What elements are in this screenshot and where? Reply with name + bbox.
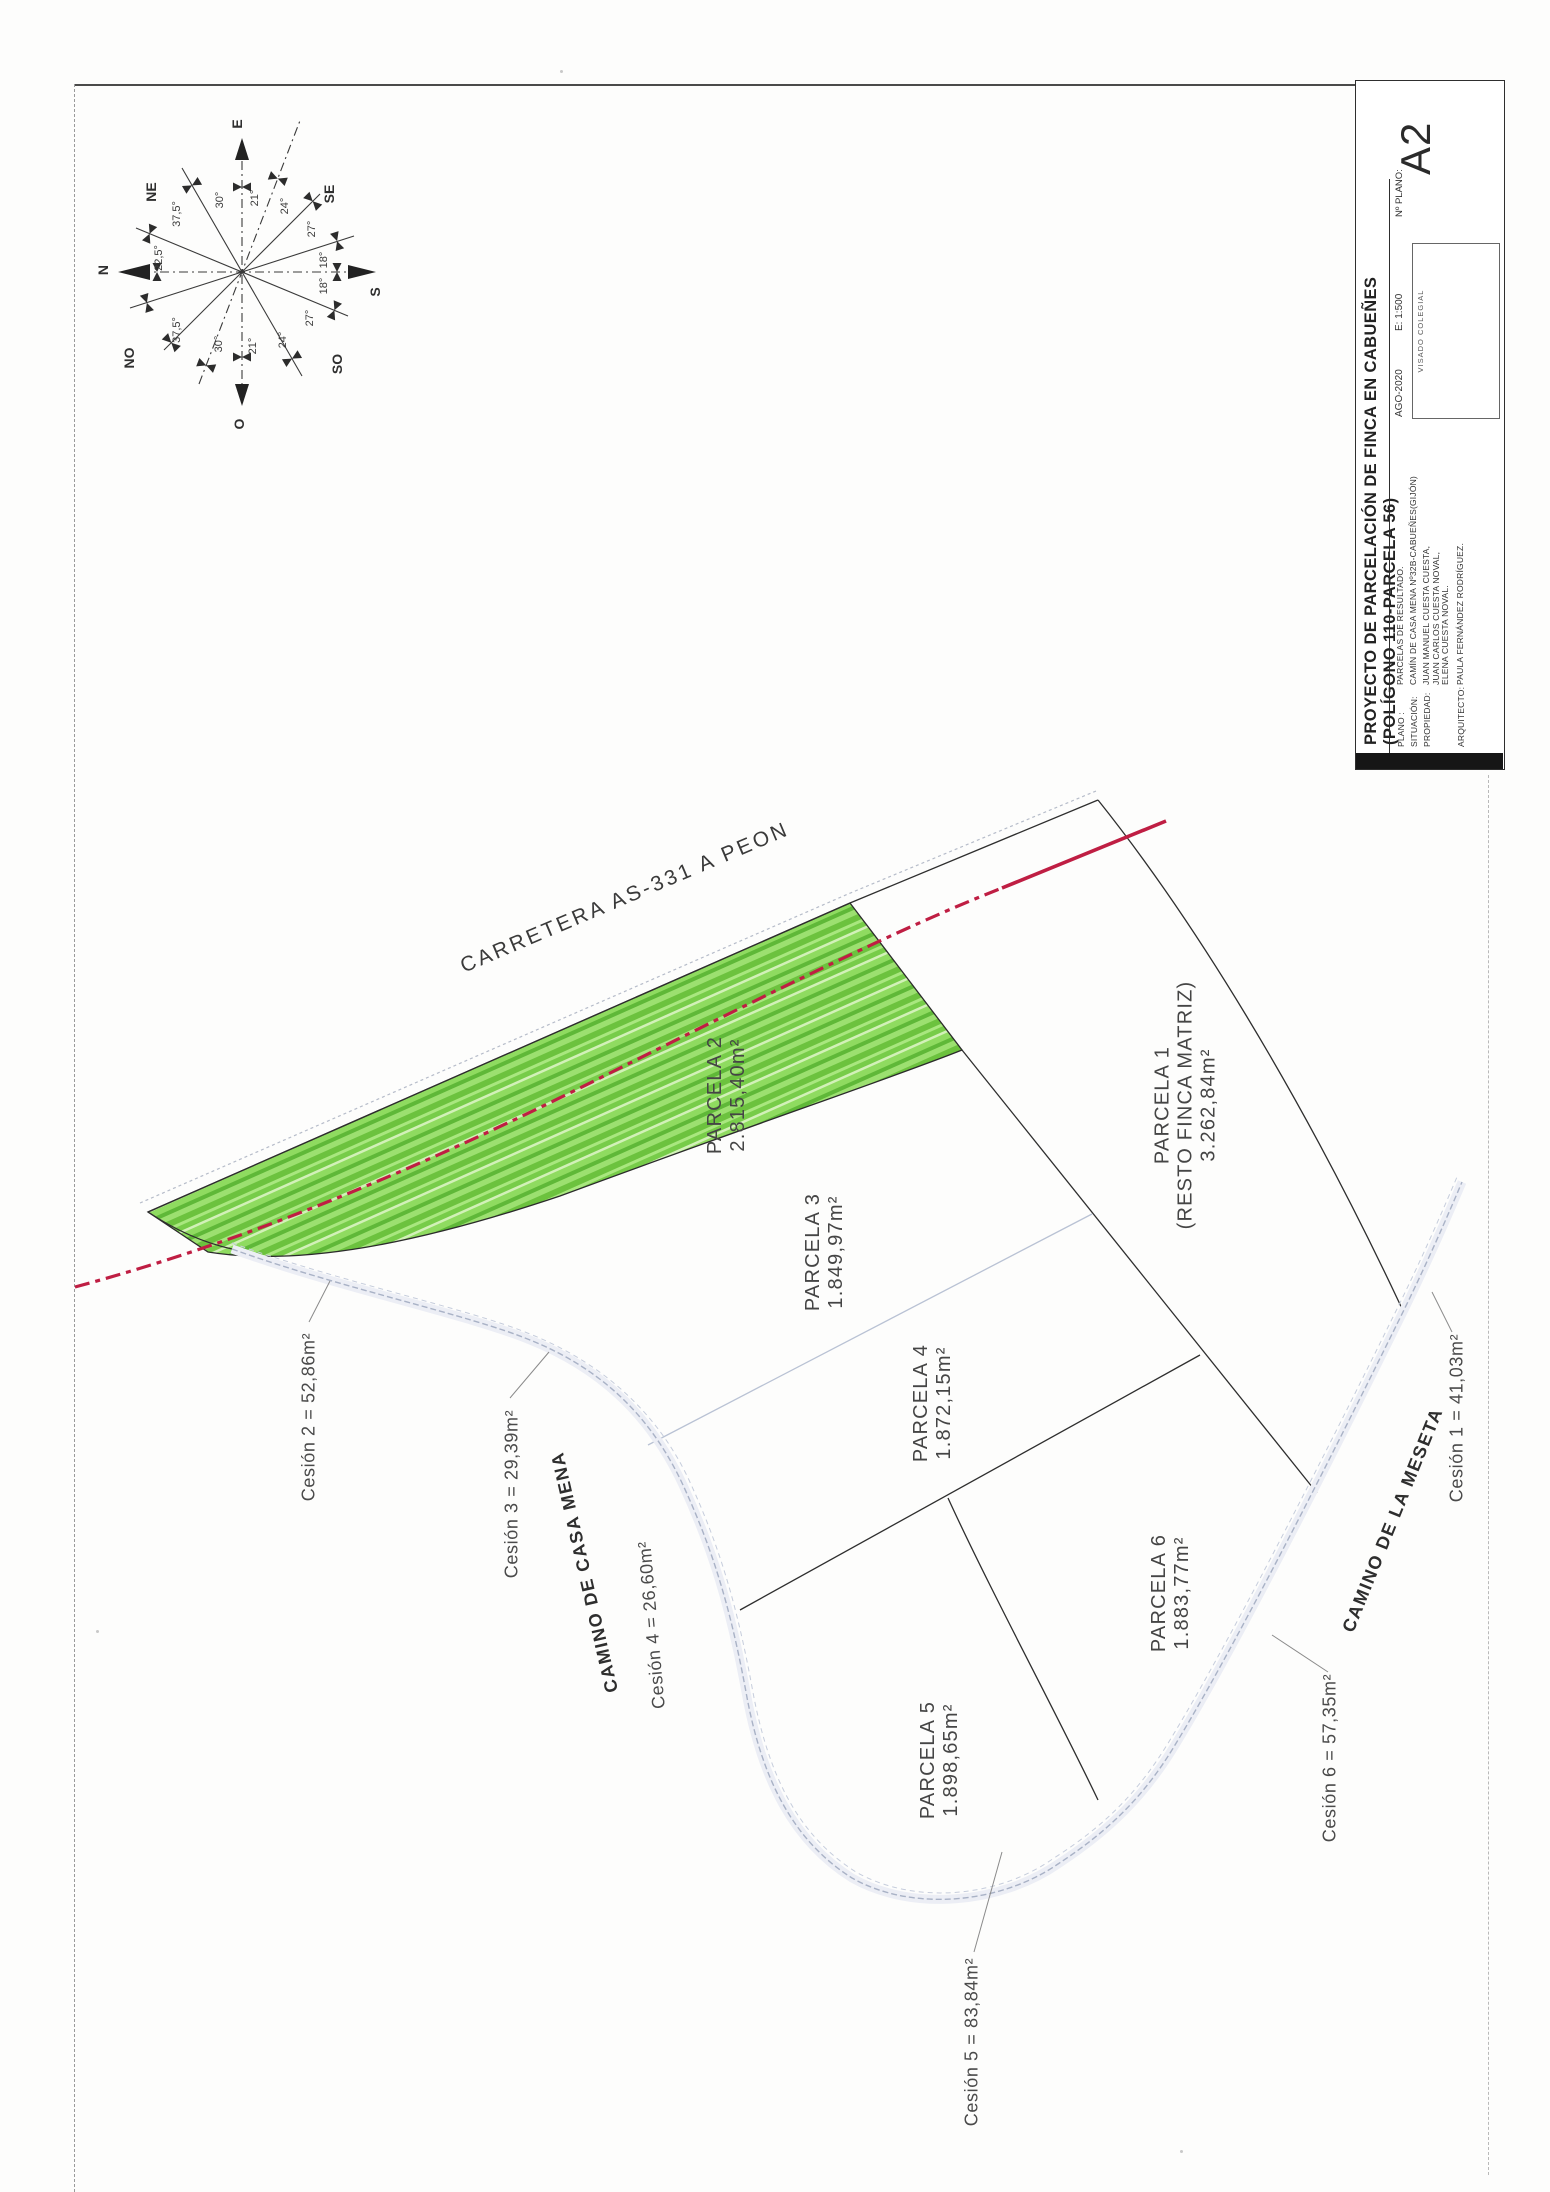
svg-text:30°: 30° xyxy=(213,336,225,353)
cesion-3-label: Cesión 3 = 29,39m² xyxy=(502,1410,523,1578)
compass-point-ne: NE xyxy=(143,182,159,201)
svg-text:18°: 18° xyxy=(318,252,330,269)
svg-text:21°: 21° xyxy=(247,338,259,355)
cesion-1-label: Cesión 1 = 41,03m² xyxy=(1447,1334,1468,1502)
sheet-number: A2 xyxy=(1392,87,1440,175)
cesion-leader-lines xyxy=(309,1281,1452,1952)
scanned-plan-sheet: E S O N NE SE NO SO 30° 21° 24° 27° 18° … xyxy=(0,0,1550,2192)
field-propiedad: PROPIEDAD: JUAN MANUEL CUESTA CUESTA, JU… xyxy=(1422,421,1451,747)
parcela-1-label: PARCELA 1 (RESTO FINCA MATRIZ) 3.262,84m… xyxy=(1152,981,1221,1230)
svg-text:27°: 27° xyxy=(304,310,316,327)
titleblock-accent-bar xyxy=(1356,753,1503,769)
parcela-2-label: PARCELA 2 2.815,40m² xyxy=(704,1036,750,1154)
compass-point-o: O xyxy=(231,418,247,429)
cesion-6-label: Cesión 6 = 57,35m² xyxy=(1320,1674,1341,1842)
svg-text:24°: 24° xyxy=(279,198,291,215)
scan-speckle xyxy=(96,1630,99,1633)
parcel-map-drawing: E S O N NE SE NO SO 30° 21° 24° 27° 18° … xyxy=(0,0,1550,2192)
boundary-parcela3-4 xyxy=(648,1214,1092,1445)
parcela-3-label: PARCELA 3 1.849,97m² xyxy=(802,1193,848,1311)
field-situacion: SITUACIÓN: CAMÍN DE CASA MENA Nº32B-CABU… xyxy=(1409,421,1419,747)
compass-point-e: E xyxy=(229,119,245,128)
svg-text:21°: 21° xyxy=(249,190,261,207)
compass-point-no: NO xyxy=(121,347,137,368)
titleblock-fields: PLANO : PARCELAS DE RESULTADO. SITUACIÓN… xyxy=(1394,421,1502,747)
compass-point-n: N xyxy=(95,265,111,275)
sheet-title: PROYECTO DE PARCELACIÓN DE FINCA EN CABU… xyxy=(1362,179,1388,745)
svg-text:24°: 24° xyxy=(277,332,289,349)
field-plano: PLANO : PARCELAS DE RESULTADO. xyxy=(1396,421,1406,747)
visado-stamp-label: VISADO COLEGIAL xyxy=(1416,244,1425,418)
svg-text:30°: 30° xyxy=(214,192,226,209)
parcela-6-label: PARCELA 6 1.883,77m² xyxy=(1148,1534,1194,1652)
svg-text:27°: 27° xyxy=(306,221,318,238)
plan-number-label: Nº PLANO: xyxy=(1394,169,1405,217)
svg-text:22,5°: 22,5° xyxy=(153,245,165,271)
sheet-date: AGO-2020 xyxy=(1394,369,1405,417)
title-block: PROYECTO DE PARCELACIÓN DE FINCA EN CABU… xyxy=(1355,80,1505,770)
compass-point-se: SE xyxy=(321,185,337,204)
visado-stamp-box: VISADO COLEGIAL xyxy=(1412,243,1500,419)
svg-text:37,5°: 37,5° xyxy=(171,317,183,343)
compass-point-s: S xyxy=(367,287,383,296)
field-arquitecto: ARQUITECTO: PAULA FERNÁNDEZ RODRÍGUEZ. xyxy=(1456,421,1466,747)
titleblock-rule xyxy=(1389,179,1390,753)
sheet-scale: E: 1:500 xyxy=(1394,294,1405,331)
cesion-2-label: Cesión 2 = 52,86m² xyxy=(299,1333,320,1501)
parcela-4-label: PARCELA 4 1.872,15m² xyxy=(910,1344,956,1462)
compass-rose: E S O N NE SE NO SO 30° 21° 24° 27° 18° … xyxy=(95,118,383,429)
parcela-5-label: PARCELA 5 1.898,65m² xyxy=(917,1701,963,1819)
scan-speckle xyxy=(560,70,563,73)
compass-point-so: SO xyxy=(329,354,345,374)
scan-speckle xyxy=(1180,2150,1183,2153)
svg-text:18°: 18° xyxy=(318,278,330,295)
svg-text:37,5°: 37,5° xyxy=(171,201,183,227)
cesion-5-label: Cesión 5 = 83,84m² xyxy=(962,1958,983,2126)
